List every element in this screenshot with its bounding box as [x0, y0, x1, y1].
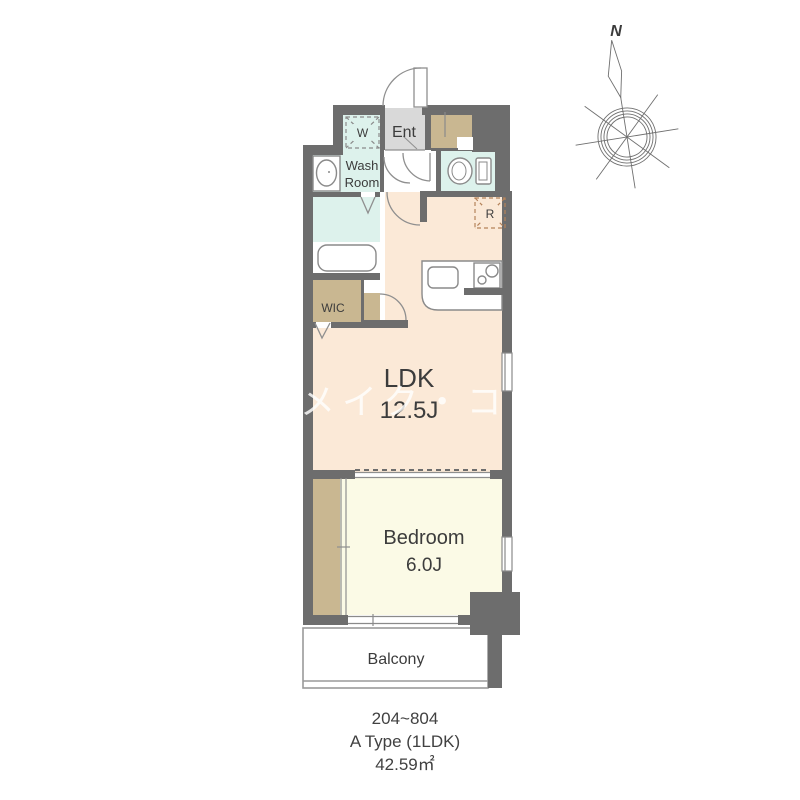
stove-icon — [474, 263, 500, 288]
floorplan-page: Wash Room W Ent WIC R LDK 12.5J Bedroom … — [0, 0, 800, 800]
room-ldk-floor-west — [313, 328, 385, 473]
window-balcony-sliding — [348, 614, 458, 626]
caption-block: 204~804 A Type (1LDK) 42.59㎡ — [255, 707, 555, 776]
room-ldk-floor — [385, 192, 502, 473]
compass-rose: N — [560, 23, 686, 196]
storage-column — [363, 293, 380, 320]
counter-partition — [464, 288, 512, 295]
window-ldk-east — [502, 353, 512, 391]
bathroom-floor — [313, 197, 380, 242]
wic-label: WIC — [321, 301, 345, 315]
caption-units: 204~804 — [255, 707, 555, 730]
ldk-size-label: 12.5J — [380, 397, 439, 424]
kitchen-counter — [422, 261, 502, 310]
bedroom-closet — [313, 478, 340, 615]
window-bedroom-east — [502, 537, 512, 571]
caption-area: 42.59㎡ — [255, 753, 555, 776]
compass-north-label: N — [610, 23, 622, 40]
washroom-label-line1: Wash — [346, 158, 379, 173]
storage-nook — [363, 278, 380, 293]
washroom-label-line2: Room — [345, 175, 380, 190]
bathtub-icon — [318, 245, 376, 271]
compass-needle-icon — [603, 39, 626, 98]
caption-type: A Type (1LDK) — [255, 730, 555, 753]
ldk-label: LDK — [384, 363, 435, 393]
kitchen-sink-icon — [428, 267, 458, 288]
pipe-space — [458, 137, 473, 150]
floorplan-drawing: Wash Room W Ent WIC R LDK 12.5J Bedroom … — [0, 0, 800, 800]
washer-space-label: W — [357, 126, 369, 140]
bedroom-size-label: 6.0J — [406, 555, 442, 576]
bedroom-label: Bedroom — [383, 527, 464, 549]
balcony-label: Balcony — [368, 651, 425, 668]
vanity-sink-icon — [313, 156, 340, 191]
refrigerator-space-label: R — [486, 207, 495, 221]
entrance-label: Ent — [392, 124, 417, 141]
